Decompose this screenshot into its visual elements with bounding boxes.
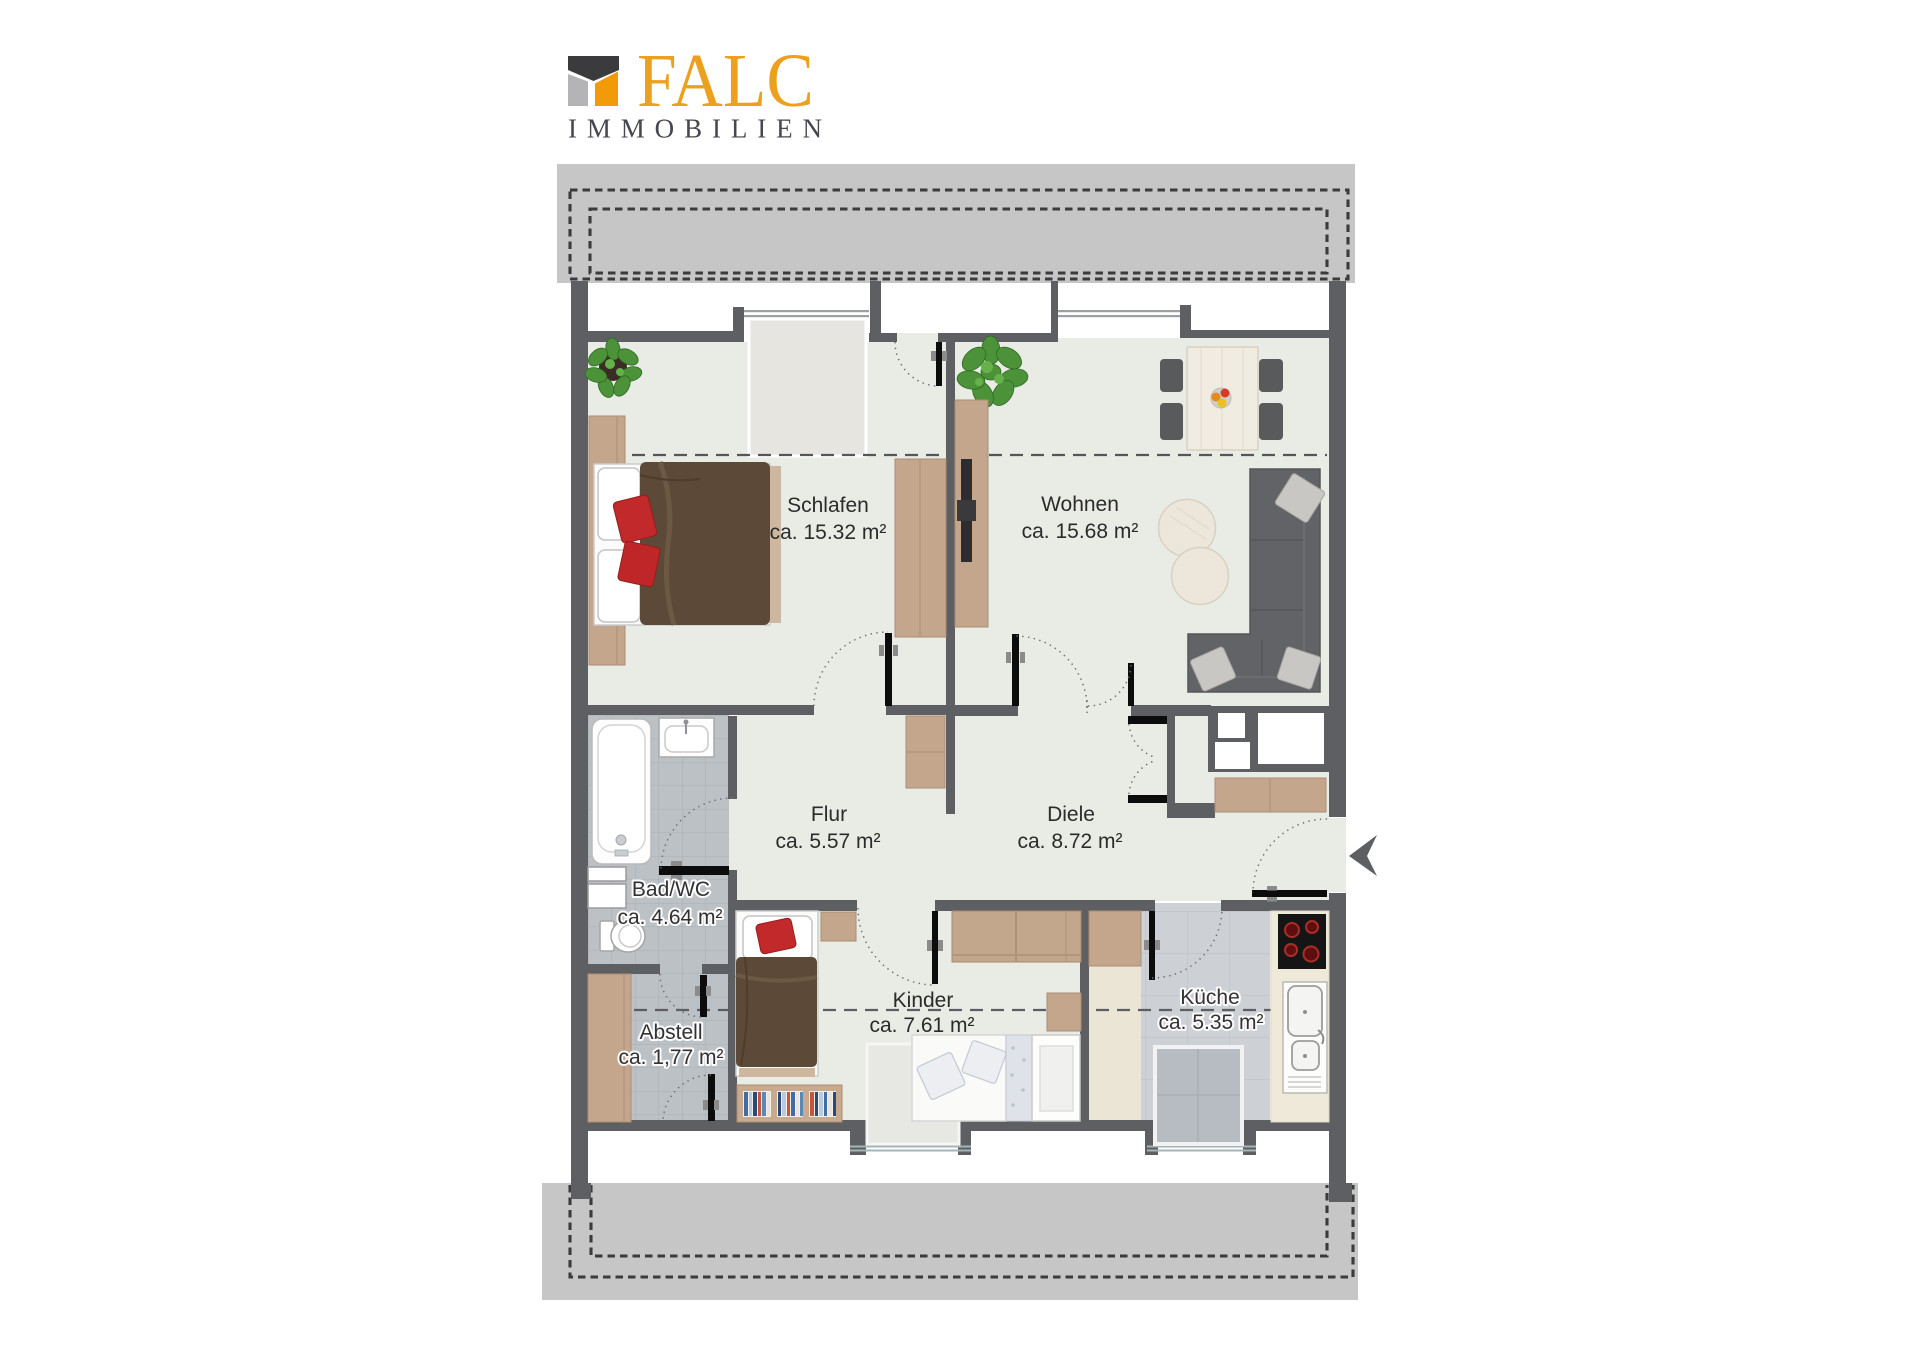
svg-text:ca. 1,77 m²: ca. 1,77 m² [618, 1046, 723, 1069]
svg-text:Wohnen: Wohnen [1041, 493, 1119, 516]
svg-text:FALC: FALC [637, 39, 814, 123]
svg-text:ca. 5.35 m²: ca. 5.35 m² [1158, 1011, 1263, 1034]
svg-text:ca. 7.61 m²: ca. 7.61 m² [869, 1014, 974, 1037]
svg-text:IMMOBILIEN: IMMOBILIEN [568, 114, 822, 144]
svg-text:ca. 15.68 m²: ca. 15.68 m² [1022, 520, 1139, 543]
svg-text:ca. 15.32 m²: ca. 15.32 m² [770, 521, 887, 544]
svg-text:ca. 8.72 m²: ca. 8.72 m² [1017, 830, 1122, 853]
svg-text:Bad/WC: Bad/WC [632, 878, 710, 901]
svg-text:Schlafen: Schlafen [787, 494, 869, 517]
svg-text:Abstell: Abstell [639, 1021, 702, 1044]
svg-text:Flur: Flur [811, 803, 847, 826]
svg-text:Kinder: Kinder [893, 989, 954, 1012]
svg-text:ca. 4.64 m²: ca. 4.64 m² [617, 906, 722, 929]
svg-text:ca. 5.57 m²: ca. 5.57 m² [775, 830, 880, 853]
svg-text:Diele: Diele [1047, 803, 1095, 826]
svg-text:Küche: Küche [1180, 986, 1240, 1009]
